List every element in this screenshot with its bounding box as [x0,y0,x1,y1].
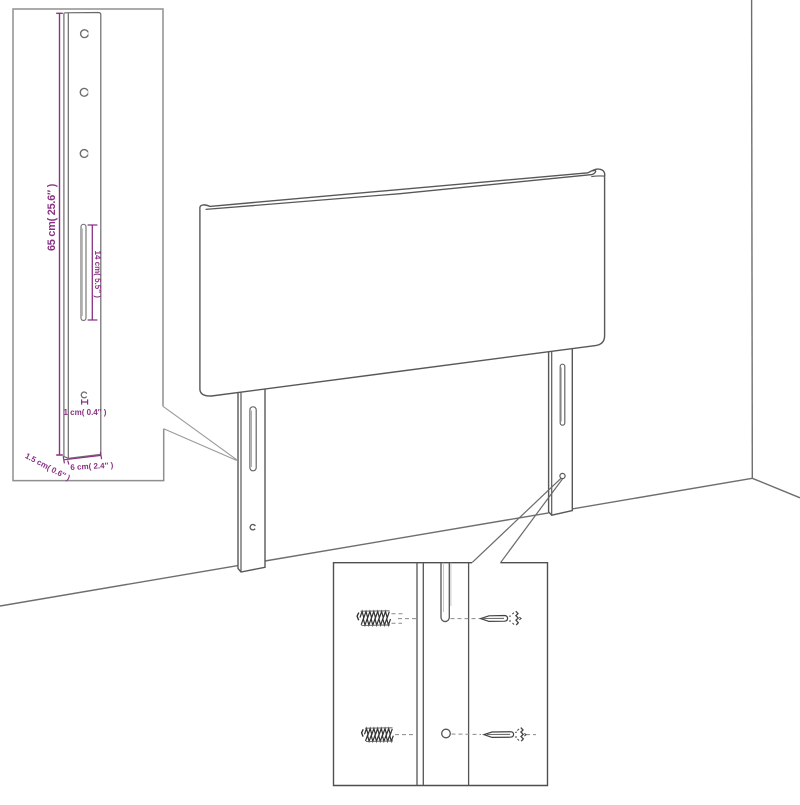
svg-text:65 cm( 25.6″ ): 65 cm( 25.6″ ) [46,183,58,251]
svg-text:14 cm( 5.5″ ): 14 cm( 5.5″ ) [93,251,102,299]
svg-text:1 cm( 0.4″ ): 1 cm( 0.4″ ) [64,408,107,417]
